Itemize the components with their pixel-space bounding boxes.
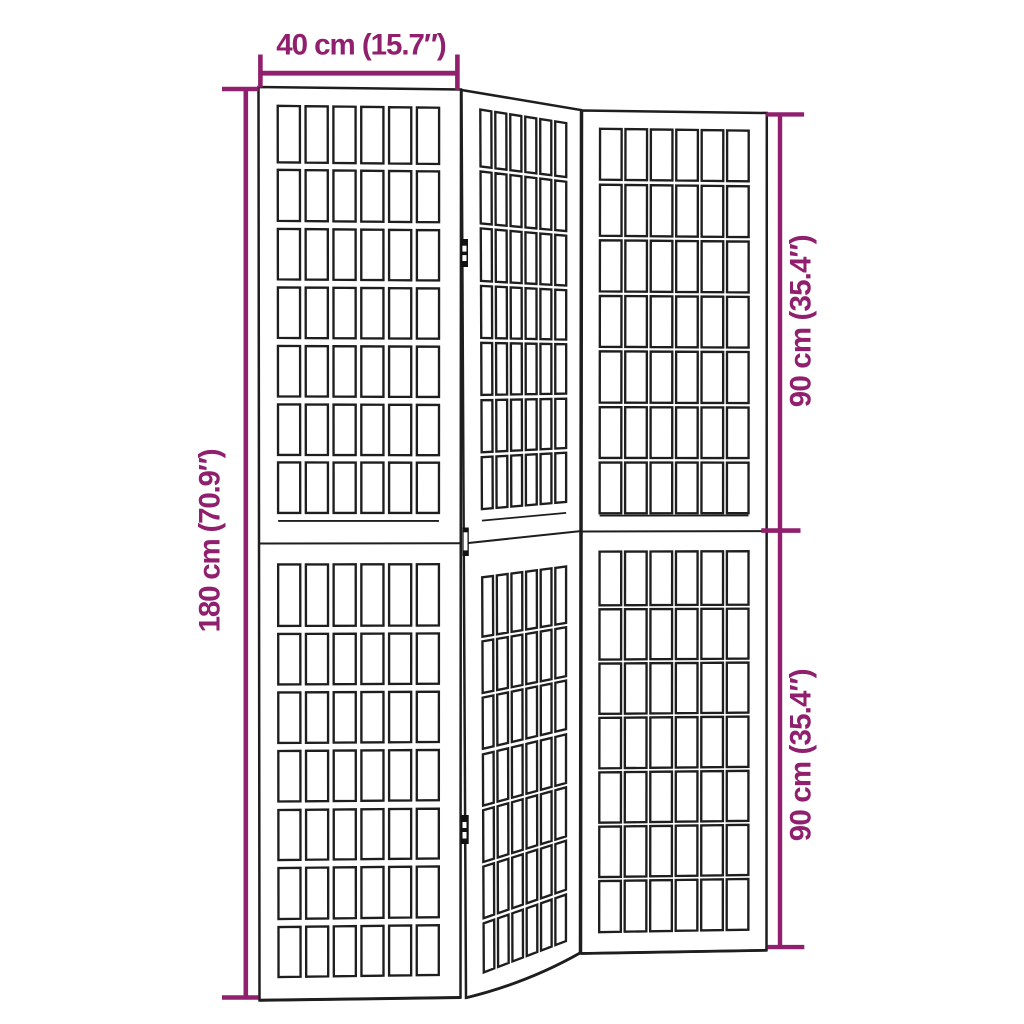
svg-text:90 cm (35.4″): 90 cm (35.4″) — [785, 235, 818, 407]
svg-text:40 cm (15.7″): 40 cm (15.7″) — [276, 29, 446, 62]
svg-text:90 cm (35.4″): 90 cm (35.4″) — [785, 669, 818, 841]
svg-text:180 cm (70.9″): 180 cm (70.9″) — [194, 449, 227, 632]
